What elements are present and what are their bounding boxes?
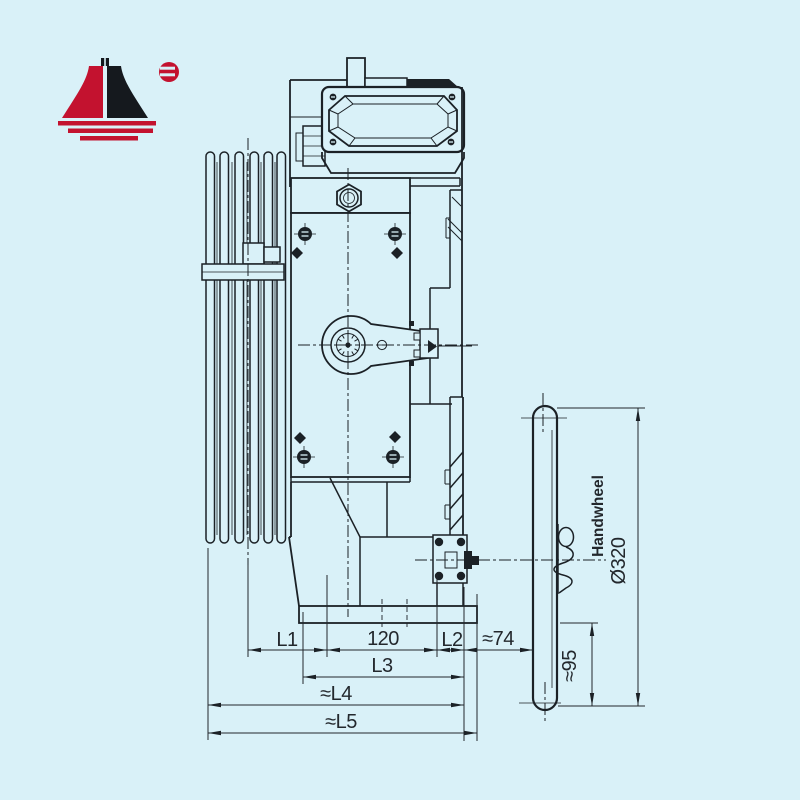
dim-label-l5: ≈L5 <box>325 711 357 733</box>
dim-label-320: Ø320 <box>608 537 630 584</box>
dim-label-120: 120 <box>367 628 399 650</box>
dim-label-l3: L3 <box>371 655 393 677</box>
logo-underline <box>80 136 138 141</box>
drawing-canvas: L1 120 L2 ≈74 L3 ≈L4 ≈L5 ≈95 Ø320 Handwh… <box>0 0 800 800</box>
dim-label-95: ≈95 <box>559 650 581 682</box>
logo-underline <box>58 121 156 126</box>
logo-tower-left <box>62 66 103 118</box>
worm-shaft-end <box>433 535 479 606</box>
gear-housing <box>291 178 460 213</box>
dim-label-74: ≈74 <box>482 628 514 650</box>
dim-label-l2: L2 <box>441 629 463 651</box>
terminal-box <box>290 58 464 187</box>
logo-e-mark <box>159 62 179 82</box>
machine-body <box>289 58 479 627</box>
dimensions: L1 120 L2 ≈74 L3 ≈L4 ≈L5 ≈95 Ø320 Handwh… <box>208 408 645 741</box>
logo-tower-split <box>104 58 106 118</box>
logo-e-slit <box>160 73 175 76</box>
tower-logo <box>58 58 179 141</box>
traction-sheave <box>202 152 286 543</box>
extension-lines <box>208 408 645 741</box>
oil-plug <box>337 185 361 212</box>
technical-drawing: L1 120 L2 ≈74 L3 ≈L4 ≈L5 ≈95 Ø320 Handwh… <box>0 0 800 800</box>
handwheel-label: Handwheel <box>590 475 607 557</box>
logo-tower-right <box>107 66 148 118</box>
logo-e-slit <box>160 67 175 70</box>
cable-gland <box>296 126 325 166</box>
dim-label-l4: ≈L4 <box>320 683 352 705</box>
logo-underline <box>68 129 153 134</box>
dim-label-l1: L1 <box>276 629 298 651</box>
